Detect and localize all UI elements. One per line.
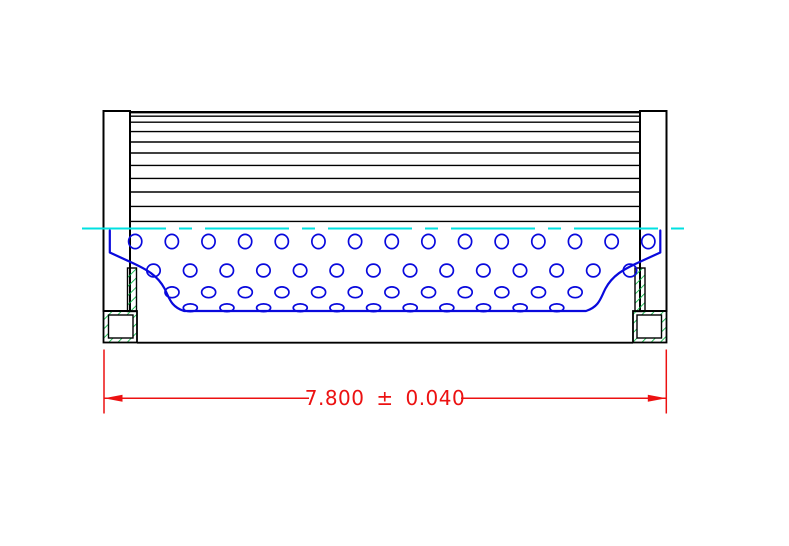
perforation-hole (587, 264, 600, 277)
perforation-hole (495, 234, 508, 248)
perforation-hole (532, 287, 546, 298)
perforation-hole (275, 287, 289, 298)
right-cap-hatch-strip (635, 268, 645, 312)
pleat-lines (130, 116, 642, 221)
perforation-hole (568, 234, 581, 248)
perforation-hole (293, 264, 306, 277)
perforation-hole (220, 264, 233, 277)
filter-drawing-svg: 7.800 ± 0.040 (0, 0, 789, 546)
perforation-holes (129, 234, 655, 311)
left-cap-bar (104, 111, 131, 311)
left-cap-hatch-strip (128, 268, 137, 312)
perforation-hole (202, 234, 215, 248)
left-cap-step-bore (109, 315, 134, 338)
length-dimension: 7.800 ± 0.040 (104, 350, 666, 414)
perforation-hole (202, 287, 216, 298)
perforation-hole (312, 287, 326, 298)
perforation-hole (367, 264, 380, 277)
perforation-hole (532, 234, 545, 248)
perforation-hole (422, 287, 436, 298)
perforation-hole (312, 234, 325, 248)
perforation-hole (183, 264, 196, 277)
perforation-hole (550, 264, 563, 277)
perforation-hole (385, 234, 398, 248)
perforation-hole (385, 287, 399, 298)
perforation-hole (422, 234, 435, 248)
perforation-hole (440, 264, 453, 277)
perforation-hole (349, 234, 362, 248)
perforation-hole (348, 287, 362, 298)
dimension-text: 7.800 ± 0.040 (305, 386, 465, 410)
perforation-hole (238, 287, 252, 298)
perforation-hole (458, 234, 471, 248)
perforation-hole (568, 287, 582, 298)
drawing-canvas: 7.800 ± 0.040 (0, 0, 789, 546)
left-end-cap (104, 111, 138, 343)
perforation-hole (458, 287, 472, 298)
perforation-hole (239, 234, 252, 248)
perforation-hole (513, 264, 526, 277)
right-cap-step-bore (637, 315, 662, 338)
dimension-arrow-left (104, 395, 123, 402)
perforation-hole (477, 264, 490, 277)
perforation-hole (275, 234, 288, 248)
pleat-block (129, 112, 644, 221)
perforation-hole (257, 264, 270, 277)
perforation-hole (165, 234, 178, 248)
perforation-hole (495, 287, 509, 298)
perforation-hole (403, 264, 416, 277)
perforation-hole (605, 234, 618, 248)
perforation-hole (330, 264, 343, 277)
dimension-arrow-right (648, 395, 667, 402)
right-end-cap (633, 111, 667, 343)
